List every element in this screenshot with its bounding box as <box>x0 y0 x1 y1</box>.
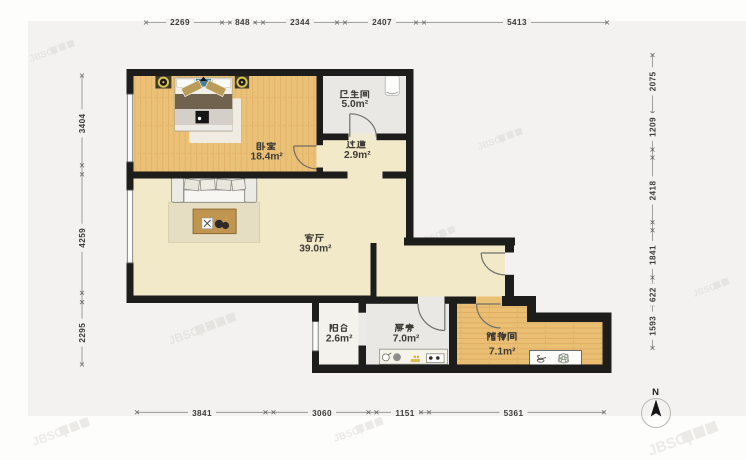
svg-text:2418: 2418 <box>648 181 657 201</box>
svg-text:5361: 5361 <box>504 409 524 418</box>
svg-text:2075: 2075 <box>648 71 657 91</box>
svg-text:5413: 5413 <box>507 18 527 27</box>
svg-text:2269: 2269 <box>170 18 190 27</box>
svg-text:3060: 3060 <box>312 409 332 418</box>
svg-text:1151: 1151 <box>395 409 414 418</box>
svg-text:3404: 3404 <box>78 113 87 133</box>
svg-text:2295: 2295 <box>78 323 87 343</box>
svg-text:2.6m²: 2.6m² <box>326 334 353 345</box>
svg-text:18.4m²: 18.4m² <box>251 152 284 163</box>
svg-text:2344: 2344 <box>290 18 310 27</box>
svg-text:3841: 3841 <box>192 409 212 418</box>
svg-text:5.0m²: 5.0m² <box>341 99 368 110</box>
svg-text:7.0m²: 7.0m² <box>393 334 420 345</box>
svg-text:2.9m²: 2.9m² <box>344 150 371 161</box>
svg-text:1593: 1593 <box>648 316 657 336</box>
svg-text:4259: 4259 <box>78 228 87 248</box>
svg-text:N: N <box>652 387 659 398</box>
svg-text:7.1m²: 7.1m² <box>489 347 516 358</box>
svg-text:2407: 2407 <box>372 18 392 27</box>
svg-text:1209: 1209 <box>648 117 657 137</box>
svg-text:1841: 1841 <box>648 245 657 265</box>
svg-text:622: 622 <box>648 287 657 302</box>
svg-text:848: 848 <box>235 18 250 27</box>
svg-text:39.0m²: 39.0m² <box>299 244 332 255</box>
